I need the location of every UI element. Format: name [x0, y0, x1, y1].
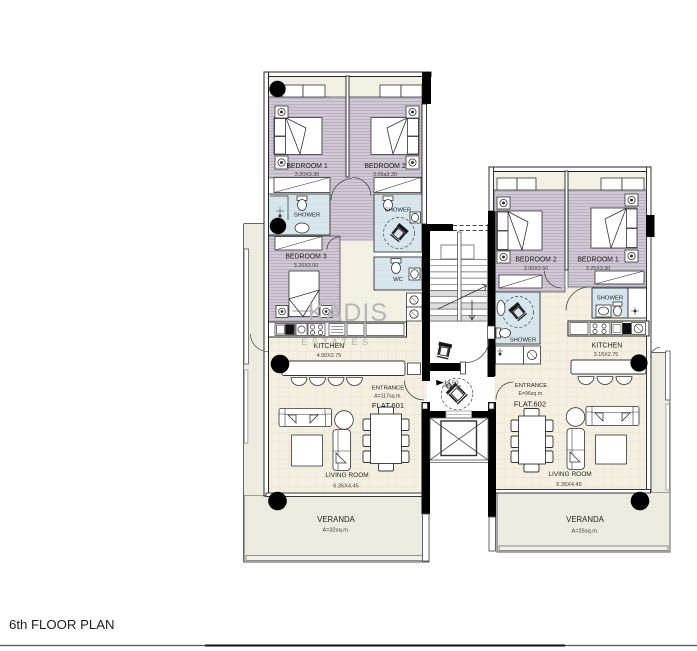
svg-text:A=117sq.m.: A=117sq.m.	[374, 394, 401, 400]
svg-text:3.20X3.00: 3.20X3.00	[294, 263, 319, 269]
svg-text:6.35X4.45: 6.35X4.45	[333, 484, 359, 490]
svg-text:SHOWER: SHOWER	[294, 213, 321, 219]
svg-text:A=32sq.m.: A=32sq.m.	[323, 528, 350, 534]
svg-text:FLAT.602: FLAT.602	[514, 400, 546, 409]
svg-text:ENTRANCE: ENTRANCE	[372, 386, 404, 392]
svg-text:LIVING ROOM: LIVING ROOM	[548, 471, 591, 478]
svg-text:SHOWER: SHOWER	[510, 338, 537, 344]
svg-text:LIVING ROOM: LIVING ROOM	[325, 472, 368, 479]
svg-text:A=25sq.m.: A=25sq.m.	[572, 529, 599, 535]
svg-text:4.50X2.75: 4.50X2.75	[317, 353, 342, 359]
svg-text:BEDROOM 1: BEDROOM 1	[577, 257, 619, 264]
svg-text:VERANDA: VERANDA	[317, 515, 355, 524]
svg-text:SHOWER: SHOWER	[385, 208, 412, 214]
svg-text:BEDROOM 2: BEDROOM 2	[515, 257, 557, 264]
svg-text:WC: WC	[393, 277, 404, 283]
svg-text:3.15X2.75: 3.15X2.75	[594, 352, 619, 358]
svg-text:BEDROOM 1: BEDROOM 1	[286, 163, 328, 170]
svg-text:SHOWER: SHOWER	[597, 296, 624, 302]
svg-text:KADIS: KADIS	[308, 299, 388, 327]
svg-text:ENTRANCE: ENTRANCE	[515, 383, 547, 389]
svg-text:KITCHEN: KITCHEN	[592, 343, 623, 350]
svg-text:BEDROOM 2: BEDROOM 2	[364, 163, 406, 170]
svg-text:E=96sq.m.: E=96sq.m.	[519, 391, 544, 397]
svg-text:6th FLOOR PLAN: 6th FLOOR PLAN	[9, 617, 115, 632]
svg-text:6.35X4.45: 6.35X4.45	[556, 482, 582, 488]
svg-text:ESTATES: ESTATES	[301, 337, 372, 347]
svg-text:VERANDA: VERANDA	[566, 515, 604, 524]
svg-text:BEDROOM 3: BEDROOM 3	[285, 254, 327, 261]
